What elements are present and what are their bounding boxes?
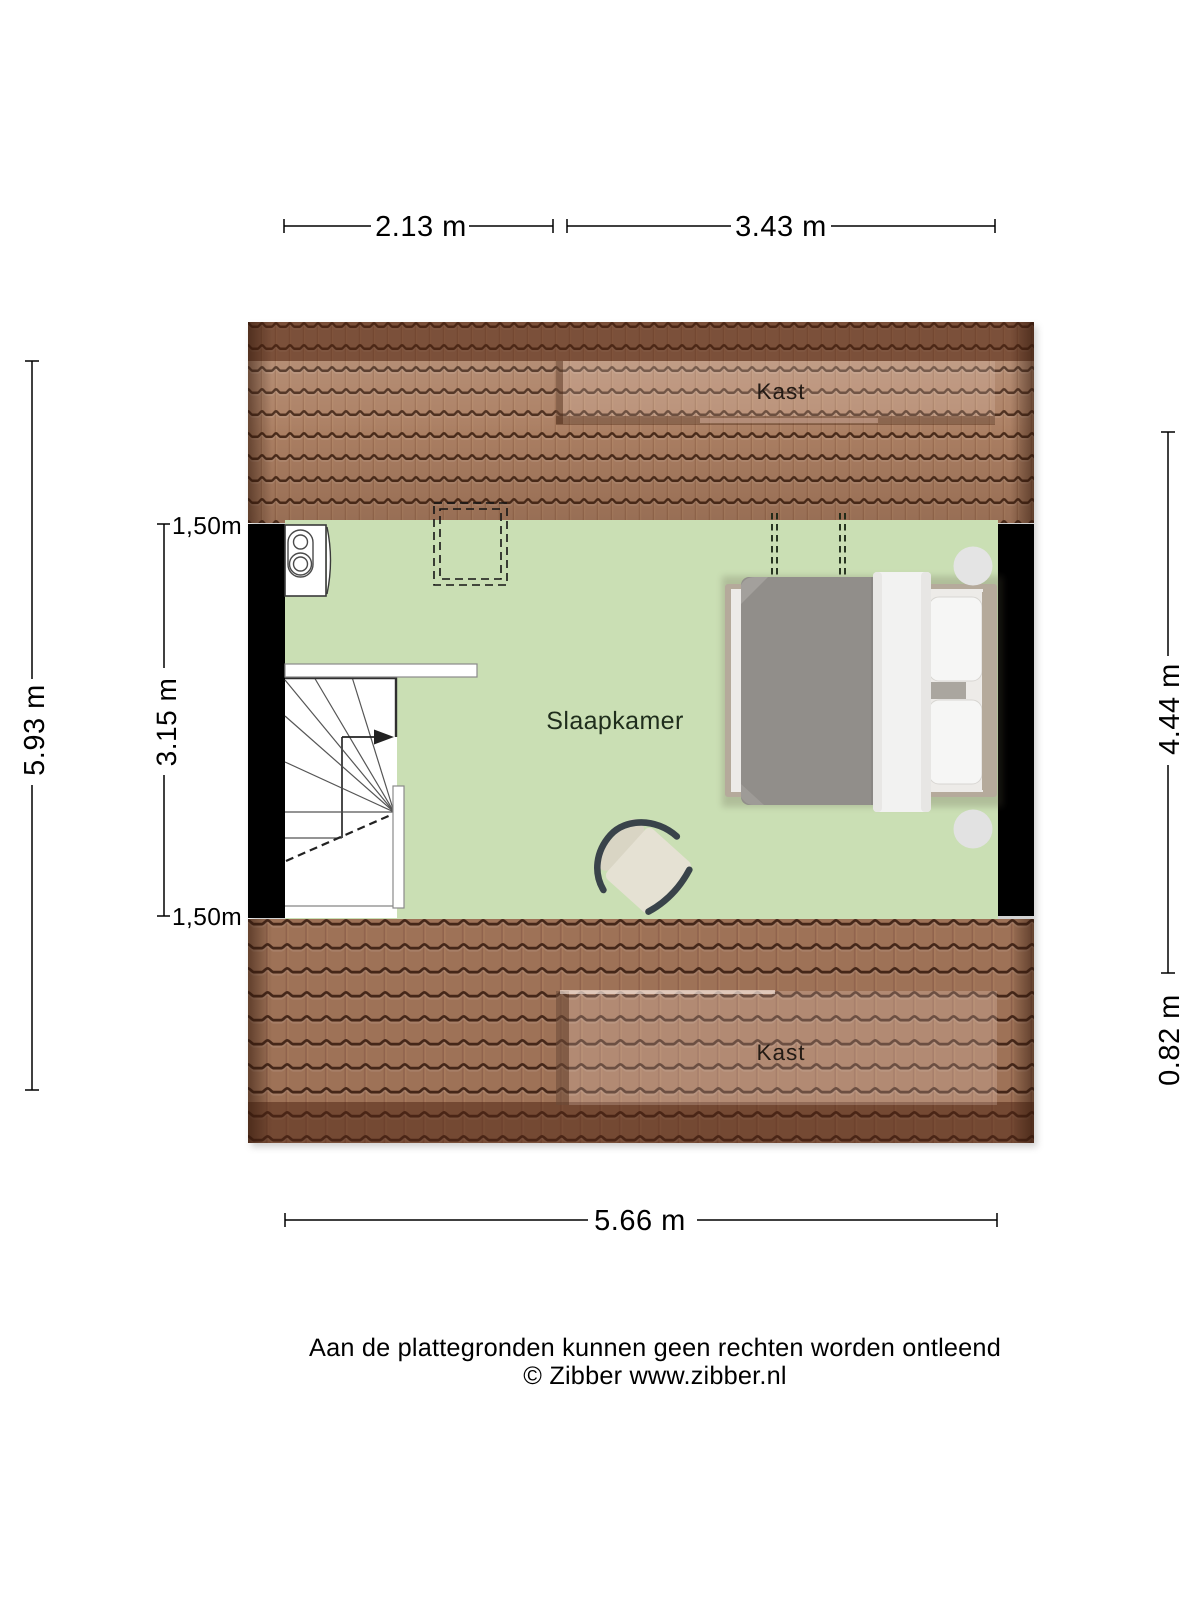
- svg-text:5.93 m: 5.93 m: [19, 684, 51, 776]
- svg-text:2.13 m: 2.13 m: [375, 211, 467, 243]
- svg-text:© Zibber www.zibber.nl: © Zibber www.zibber.nl: [523, 1362, 786, 1390]
- svg-text:4.44 m: 4.44 m: [1154, 663, 1186, 755]
- svg-text:1,50m: 1,50m: [172, 904, 242, 931]
- svg-text:3.43 m: 3.43 m: [735, 211, 827, 243]
- svg-text:5.66 m: 5.66 m: [594, 1205, 686, 1237]
- svg-text:1,50m: 1,50m: [172, 513, 242, 540]
- svg-text:3.15 m: 3.15 m: [151, 678, 182, 767]
- svg-text:Kast: Kast: [756, 379, 805, 404]
- svg-text:Kast: Kast: [756, 1040, 805, 1065]
- svg-text:Aan de plattegronden kunnen ge: Aan de plattegronden kunnen geen rechten…: [309, 1334, 1001, 1362]
- svg-text:Slaapkamer: Slaapkamer: [546, 707, 683, 735]
- svg-text:0.82 m: 0.82 m: [1154, 994, 1186, 1086]
